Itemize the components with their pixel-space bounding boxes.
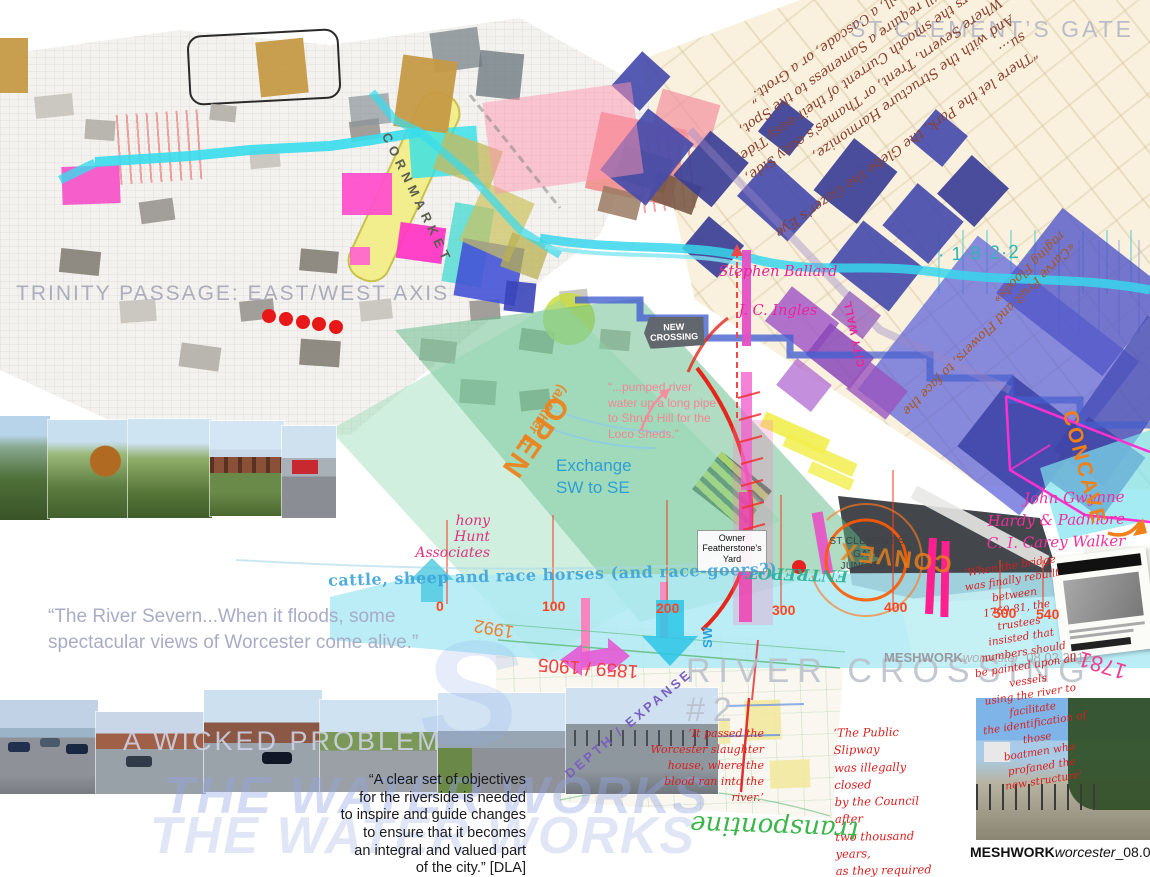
scale-marks-layer: 0100200300400500540 — [0, 0, 1150, 877]
meshwork-collage: S RIVER CROSSING #2 THE WATER WORKS THE … — [0, 0, 1150, 877]
scale-mark: 200 — [656, 600, 679, 616]
scale-mark: 500 — [993, 605, 1016, 621]
scale-mark: 540 — [1036, 606, 1059, 622]
scale-mark: 300 — [772, 602, 795, 618]
scale-mark: 0 — [436, 598, 444, 614]
scale-mark: 100 — [542, 598, 565, 614]
scale-mark: 400 — [884, 599, 907, 615]
